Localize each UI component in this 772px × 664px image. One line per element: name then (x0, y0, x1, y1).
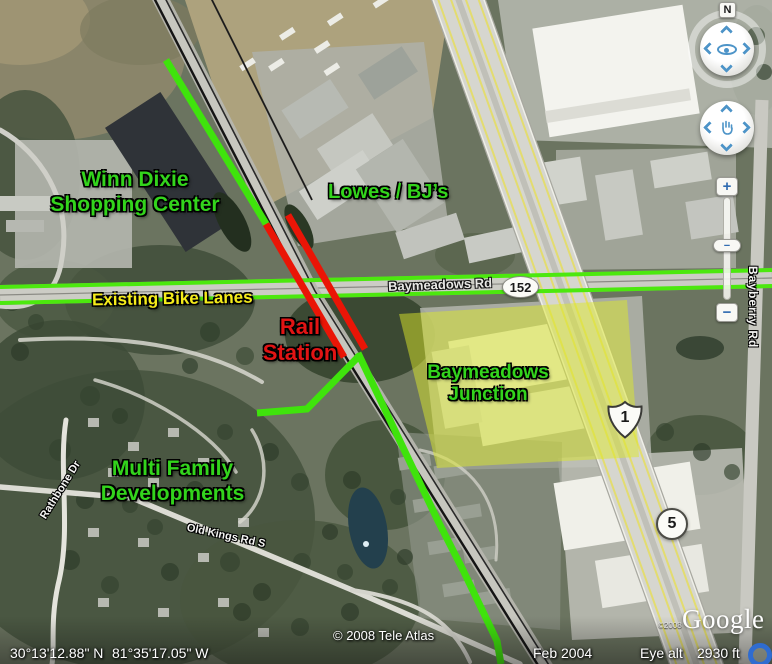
imagery-date: Feb 2004 (533, 645, 592, 661)
label-baymeadows-junction-line1: Baymeadows (408, 362, 568, 384)
look-down-arrow-icon[interactable] (720, 60, 733, 73)
label-rail-station-line1: Rail (240, 314, 360, 340)
label-rail-station: Rail Station (240, 314, 360, 366)
label-multi-family-line2: Developments (80, 482, 265, 507)
label-baymeadows-junction-line2: Junction (408, 384, 568, 406)
label-winn-dixie: Winn Dixie Shopping Center (30, 168, 240, 218)
pan-hand-icon (718, 118, 736, 141)
eye-icon (717, 44, 737, 55)
zoom-in-button[interactable]: + (716, 177, 738, 196)
look-right-arrow-icon[interactable] (738, 42, 751, 55)
latitude-readout: 30°13'12.88" N (10, 645, 103, 661)
satellite-imagery (0, 0, 772, 664)
label-multi-family: Multi Family Developments (80, 457, 265, 507)
streetview-peg-icon[interactable] (748, 643, 772, 664)
zoom-slider-handle[interactable]: − (713, 239, 741, 252)
route-shield-152-number: 152 (510, 280, 532, 295)
label-lowes-bjs: Lowes / BJ’s (328, 181, 448, 205)
label-existing-bike-lanes: Existing Bike Lanes (92, 288, 253, 311)
north-button[interactable]: N (719, 2, 736, 18)
pan-right-arrow-icon[interactable] (738, 121, 751, 134)
eye-alt-value: 2930 ft (697, 645, 740, 661)
pan-joystick[interactable] (700, 101, 754, 155)
look-joystick[interactable] (700, 22, 754, 76)
look-left-arrow-icon[interactable] (703, 42, 716, 55)
longitude-readout: 81°35'17.05" W (112, 645, 209, 661)
zoom-out-button[interactable]: − (716, 303, 738, 322)
pan-down-arrow-icon[interactable] (720, 139, 733, 152)
label-baymeadows-junction: Baymeadows Junction (408, 362, 568, 407)
us-route-1-number: 1 (606, 409, 644, 427)
route-5-number: 5 (668, 515, 677, 533)
tele-atlas-copyright: © 2008 Tele Atlas (333, 628, 434, 643)
google-earth-viewport[interactable]: Winn Dixie Shopping Center Lowes / BJ’s … (0, 0, 772, 664)
eye-alt-label: Eye alt (640, 645, 683, 661)
google-logo: Google (682, 604, 764, 635)
label-rail-station-line2: Station (240, 340, 360, 366)
label-winn-dixie-line2: Shopping Center (30, 193, 240, 218)
google-copyright-small: ©2008 (658, 621, 682, 630)
label-multi-family-line1: Multi Family (80, 457, 265, 482)
pan-up-arrow-icon[interactable] (720, 104, 733, 117)
look-up-arrow-icon[interactable] (720, 25, 733, 38)
route-shield-152: 152 (502, 276, 539, 298)
pan-left-arrow-icon[interactable] (703, 121, 716, 134)
route-5-shield: 5 (656, 508, 688, 540)
us-route-1-shield: 1 (606, 400, 644, 440)
road-label-bayberry: Bayberry Rd (746, 266, 760, 348)
label-winn-dixie-line1: Winn Dixie (30, 168, 240, 193)
